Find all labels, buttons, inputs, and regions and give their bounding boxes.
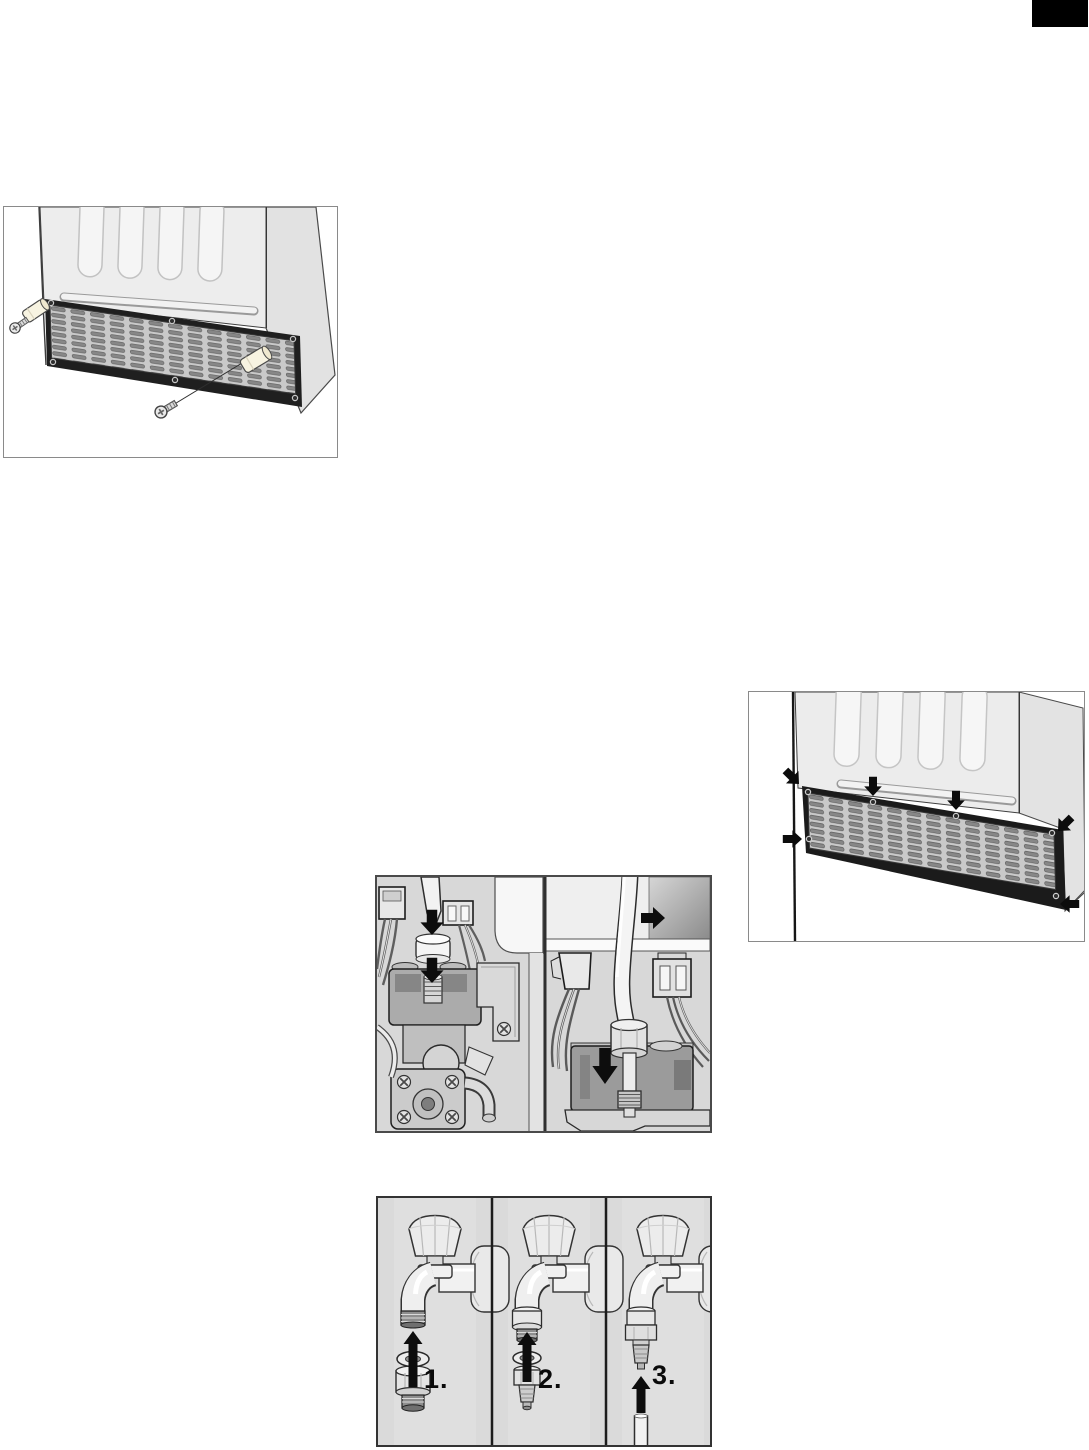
step-label-1: 1. bbox=[424, 1366, 449, 1393]
step-label-3: 3. bbox=[652, 1362, 677, 1389]
figure-water-valve-connection bbox=[375, 875, 712, 1133]
figure-grille-mounting bbox=[748, 691, 1085, 942]
step-label-2: 2. bbox=[538, 1366, 563, 1393]
manual-page: 1. 2. 3. bbox=[0, 0, 1089, 1450]
figure-grille-removal bbox=[3, 206, 338, 458]
figure-faucet-adapter-steps: 1. 2. 3. bbox=[376, 1196, 712, 1447]
supply-hose bbox=[635, 1414, 648, 1445]
page-corner-tab bbox=[1032, 0, 1088, 27]
screw bbox=[153, 398, 179, 420]
grille-removal-drawing bbox=[4, 207, 337, 457]
valve-connection-drawing bbox=[377, 877, 710, 1131]
screw bbox=[8, 315, 31, 335]
faucet-adapter-drawing bbox=[378, 1198, 710, 1445]
grille-mounting-drawing bbox=[749, 692, 1084, 941]
